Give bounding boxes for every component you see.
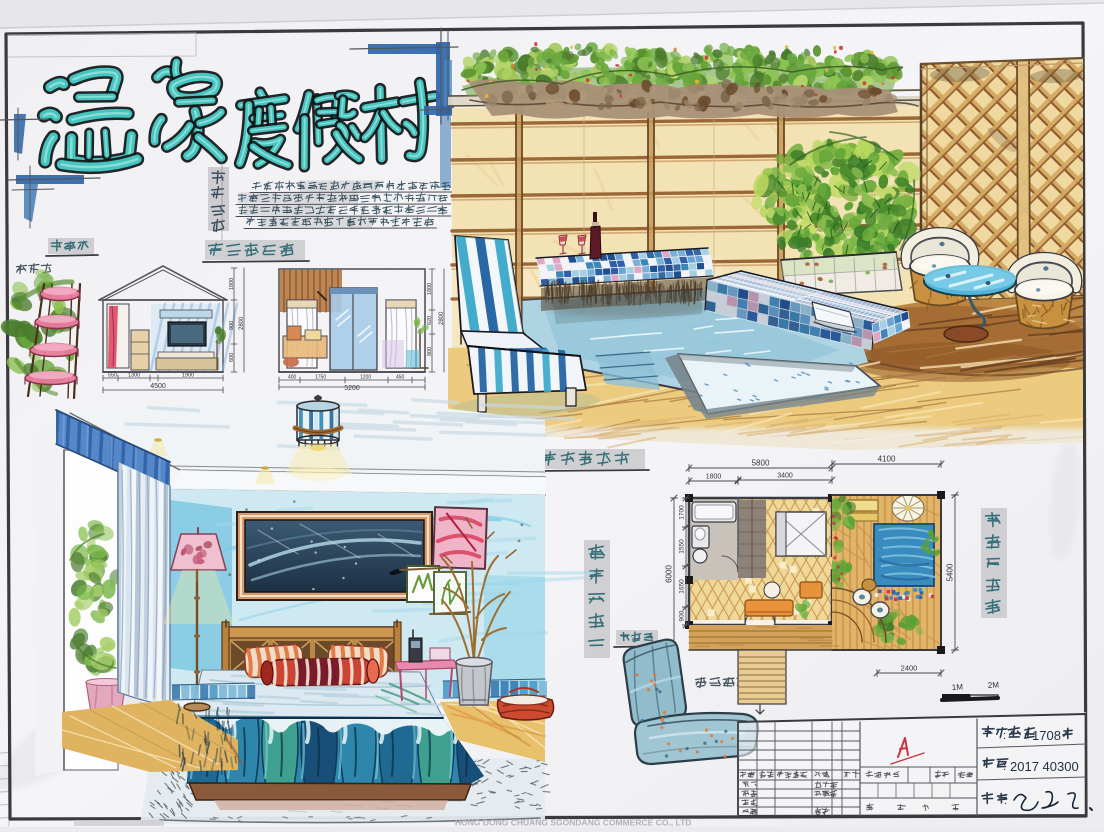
svg-text:600: 600: [229, 353, 235, 362]
svg-text:1550: 1550: [679, 539, 686, 554]
svg-text:2800: 2800: [439, 311, 445, 325]
svg-text:1M: 1M: [952, 682, 964, 692]
svg-text:HONG DONG CHUANG SGONDANG COMM: HONG DONG CHUANG SGONDANG COMMERCE CO., …: [455, 818, 691, 828]
svg-text:1800: 1800: [427, 283, 433, 295]
svg-text:550: 550: [108, 373, 117, 379]
svg-text:1200: 1200: [360, 375, 371, 381]
svg-text:900: 900: [229, 321, 235, 330]
svg-text:1700: 1700: [679, 505, 686, 520]
svg-text:1800: 1800: [229, 278, 235, 290]
svg-text:400: 400: [288, 375, 297, 381]
svg-text:4500: 4500: [150, 383, 166, 390]
svg-text:2400: 2400: [901, 664, 918, 673]
svg-text:2017 40300: 2017 40300: [1010, 759, 1079, 774]
svg-text:1800: 1800: [706, 474, 722, 481]
svg-text:2M: 2M: [988, 680, 1000, 690]
svg-text:3400: 3400: [777, 473, 793, 480]
svg-text:900: 900: [679, 610, 686, 621]
svg-text::: :: [1003, 730, 1006, 742]
svg-text:450: 450: [396, 375, 405, 381]
svg-text:1900: 1900: [182, 373, 194, 379]
svg-text:5200: 5200: [344, 385, 360, 392]
svg-text:5800: 5800: [752, 459, 770, 468]
svg-text:6000: 6000: [665, 565, 674, 583]
svg-text:1750: 1750: [315, 375, 326, 381]
svg-text:1708: 1708: [1032, 728, 1061, 743]
svg-text:1650: 1650: [679, 579, 686, 594]
svg-text:620: 620: [427, 316, 433, 325]
svg-text:4100: 4100: [878, 455, 896, 464]
svg-text::: :: [1004, 795, 1007, 807]
svg-text:800: 800: [427, 347, 433, 356]
svg-text:5400: 5400: [946, 563, 955, 581]
svg-text:2800: 2800: [239, 316, 245, 330]
svg-text::: :: [1003, 761, 1006, 773]
svg-text:1300: 1300: [128, 373, 140, 379]
